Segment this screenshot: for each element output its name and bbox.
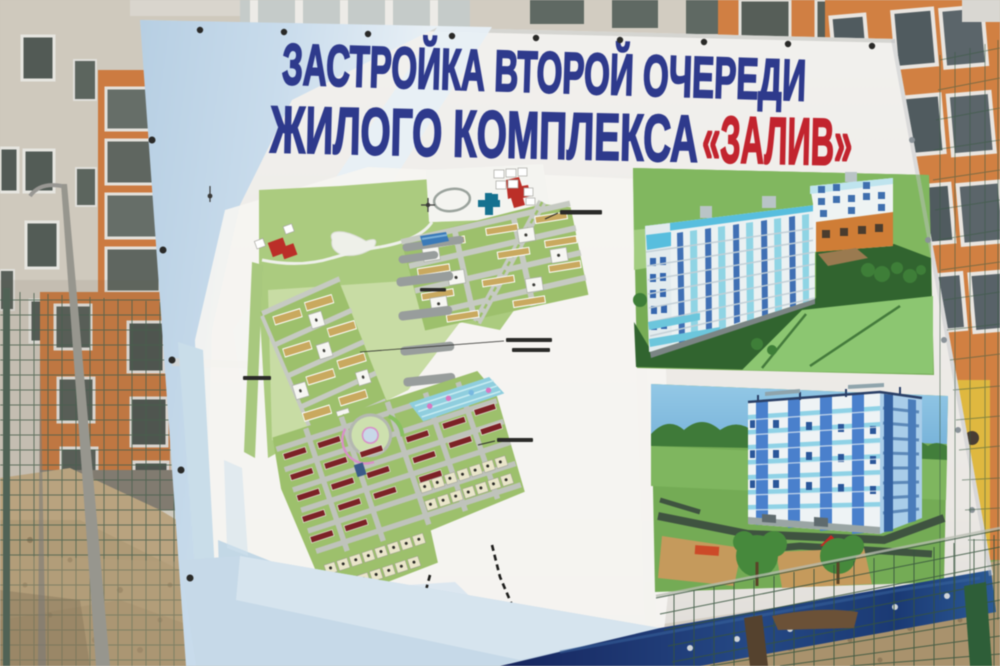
svg-text:ЖИЛОГО КОМПЛЕКСА: ЖИЛОГО КОМПЛЕКСА	[269, 92, 699, 176]
svg-text:«ЗАЛИВ»: «ЗАЛИВ»	[701, 102, 853, 179]
